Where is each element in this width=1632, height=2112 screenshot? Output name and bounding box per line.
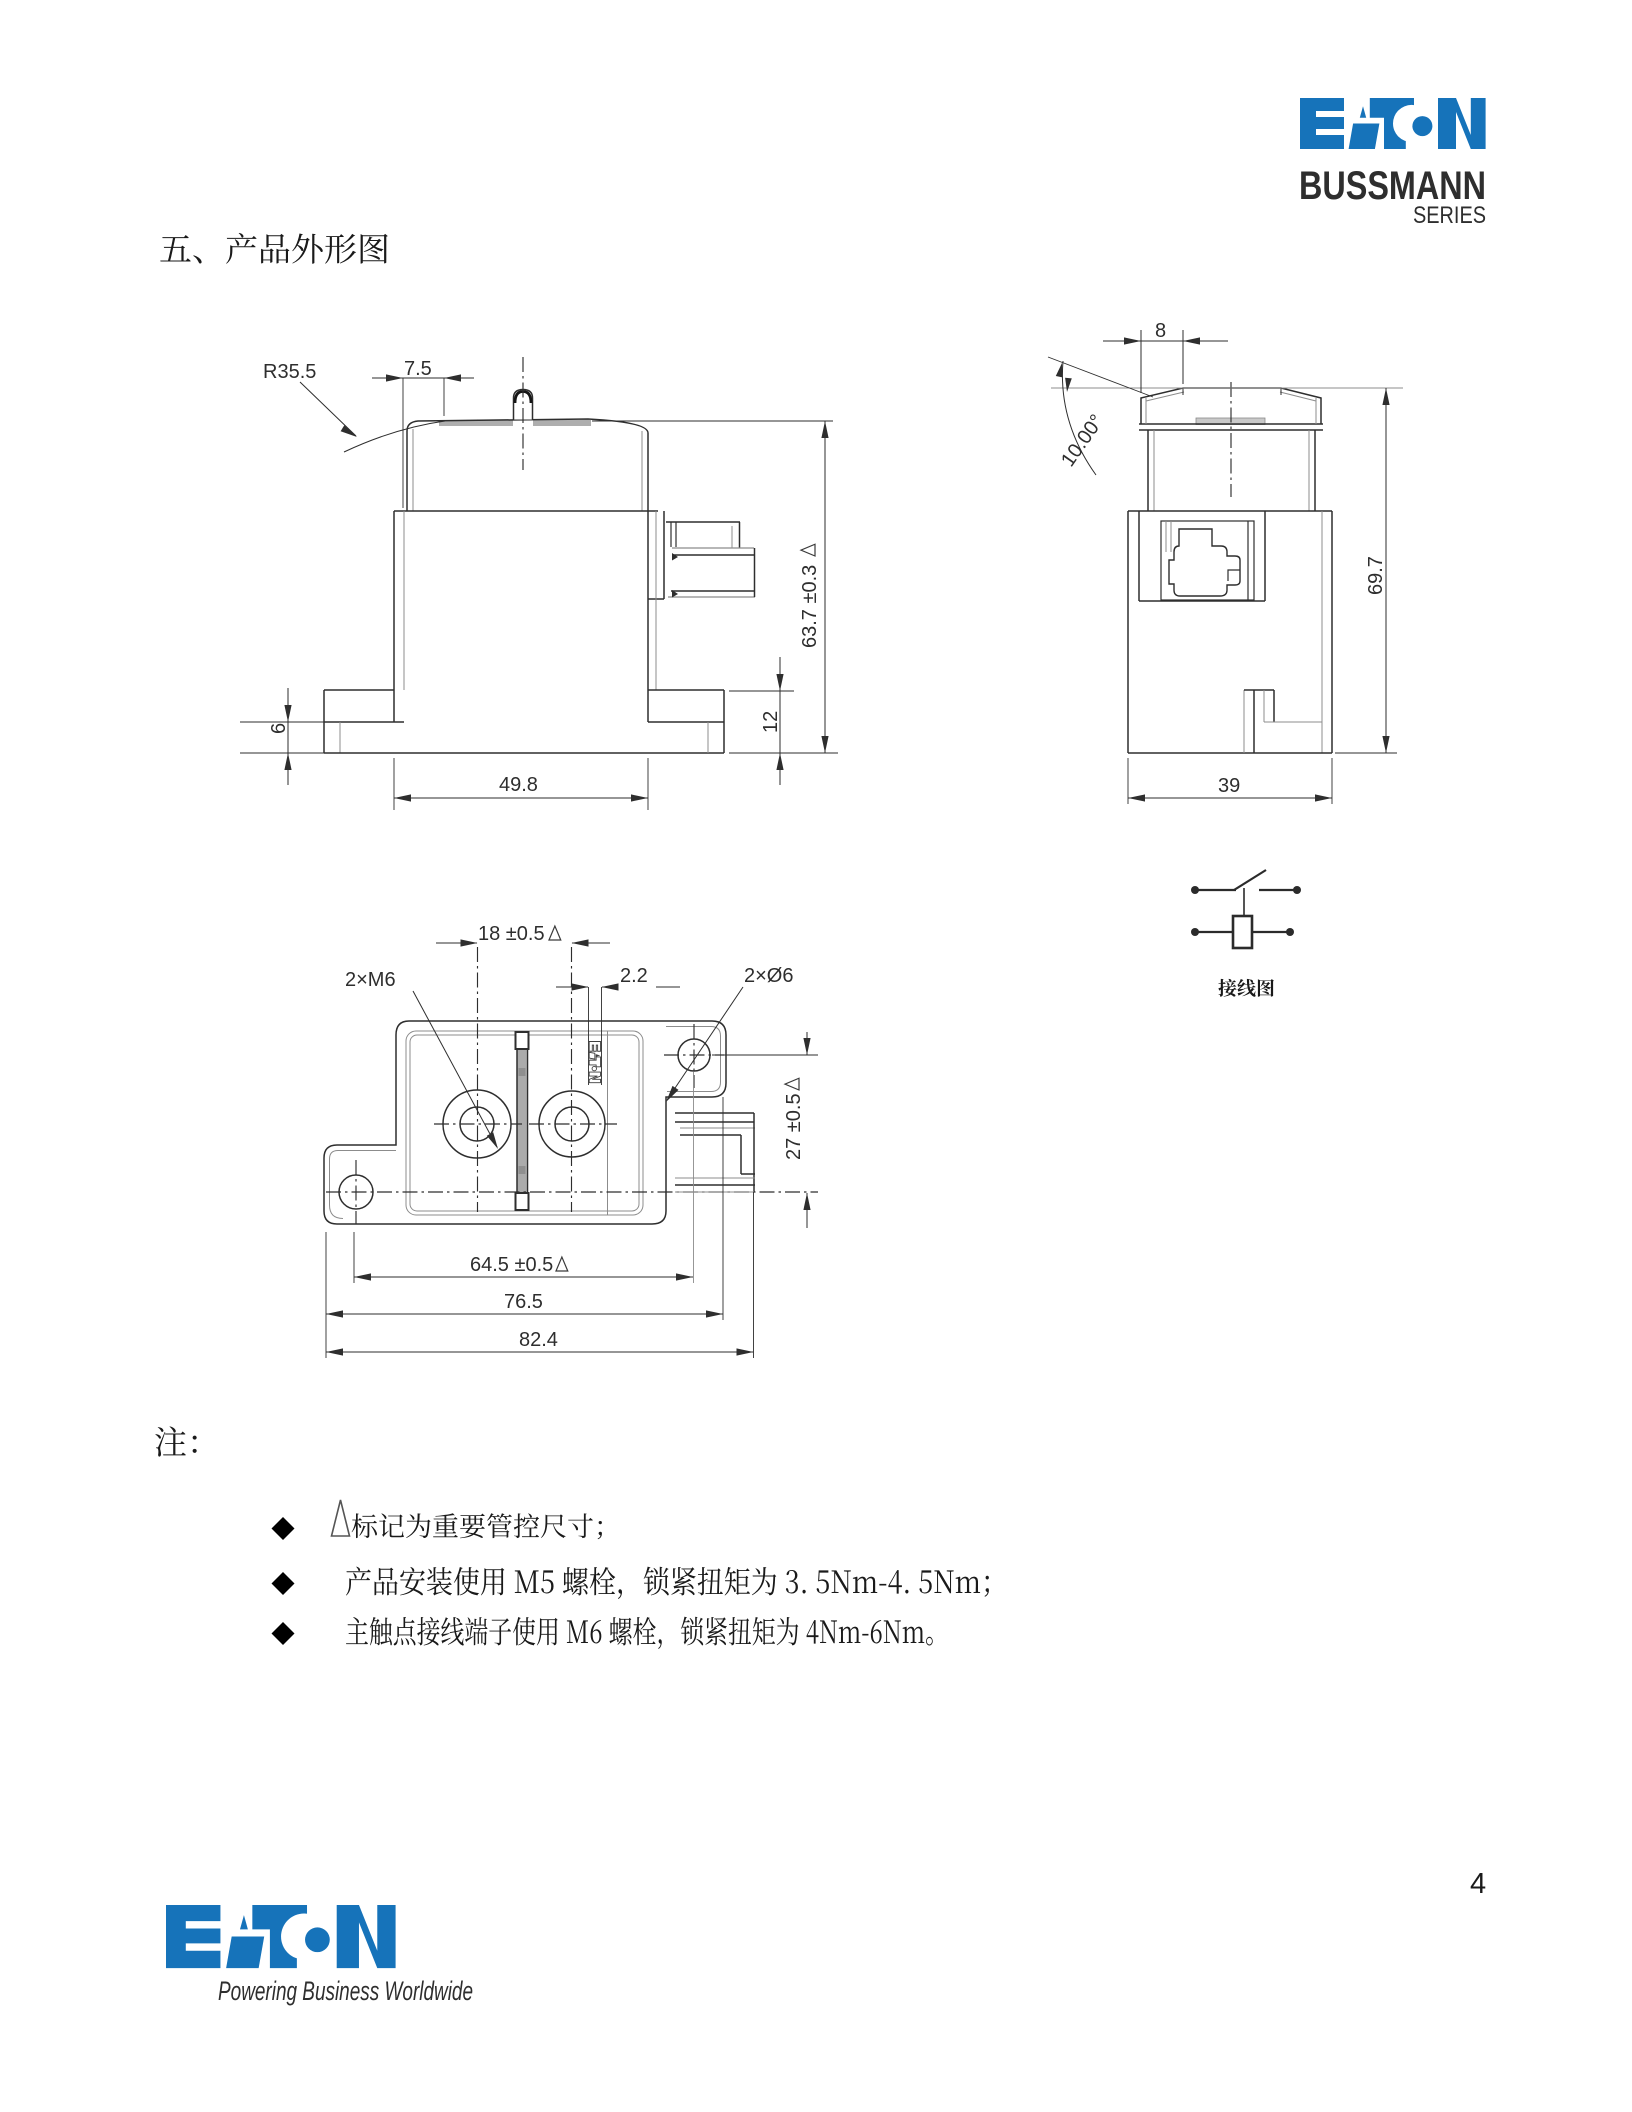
svg-text:18 ±0.5: 18 ±0.5 bbox=[478, 923, 545, 945]
svg-text:Powering Business Worldwide: Powering Business Worldwide bbox=[218, 1976, 473, 2006]
svg-text:39: 39 bbox=[1218, 775, 1240, 797]
svg-text:10.00°: 10.00° bbox=[1057, 411, 1108, 471]
svg-text:27 ±0.5: 27 ±0.5 bbox=[783, 1093, 805, 1160]
svg-text:2×Ø6: 2×Ø6 bbox=[744, 965, 793, 987]
svg-text:69.7: 69.7 bbox=[1365, 556, 1387, 595]
svg-text:82.4: 82.4 bbox=[519, 1329, 558, 1351]
svg-text:2×M6: 2×M6 bbox=[345, 969, 396, 991]
svg-text:8: 8 bbox=[1155, 320, 1166, 342]
svg-text:R35.5: R35.5 bbox=[263, 361, 316, 383]
svg-text:6: 6 bbox=[268, 723, 290, 734]
svg-text:12: 12 bbox=[760, 711, 782, 733]
svg-text:63.7 ±0.3: 63.7 ±0.3 bbox=[799, 565, 821, 648]
svg-text:49.8: 49.8 bbox=[499, 774, 538, 796]
svg-text:2.2: 2.2 bbox=[620, 965, 648, 987]
svg-text:64.5 ±0.5: 64.5 ±0.5 bbox=[470, 1254, 553, 1276]
svg-text:SERIES: SERIES bbox=[1413, 202, 1486, 229]
svg-text:76.5: 76.5 bbox=[504, 1291, 543, 1313]
svg-text:7.5: 7.5 bbox=[404, 358, 432, 380]
